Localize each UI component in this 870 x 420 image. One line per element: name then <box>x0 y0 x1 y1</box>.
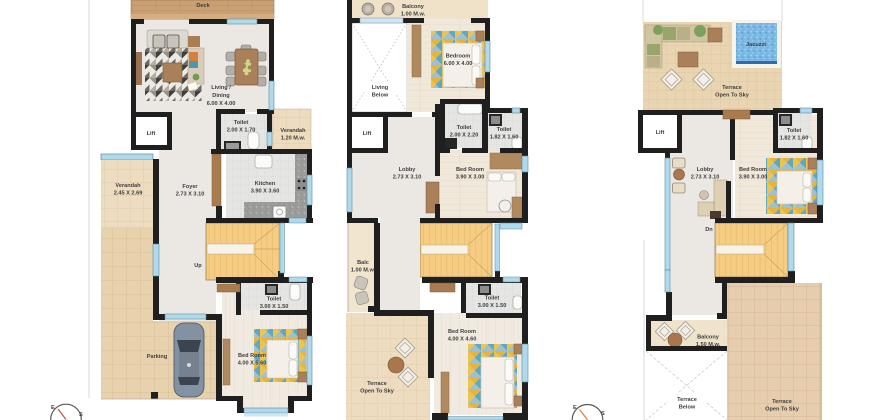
svg-text:3.90 X 3.60: 3.90 X 3.60 <box>251 189 280 195</box>
svg-text:3.00 X 1.50: 3.00 X 1.50 <box>260 304 289 310</box>
svg-text:Lobby: Lobby <box>399 167 417 173</box>
svg-text:1.82 X 1.60: 1.82 X 1.60 <box>490 135 519 141</box>
svg-text:1.20 M.w.: 1.20 M.w. <box>281 136 306 142</box>
svg-text:3.00 X 1.50: 3.00 X 1.50 <box>478 303 507 309</box>
svg-text:Open To Sky: Open To Sky <box>715 93 750 99</box>
svg-text:Deck: Deck <box>196 3 210 9</box>
svg-text:Terrace: Terrace <box>677 397 697 403</box>
svg-text:1.00 M.w.: 1.00 M.w. <box>351 268 376 274</box>
svg-text:2.73 X 3.10: 2.73 X 3.10 <box>393 175 422 181</box>
svg-text:Lift: Lift <box>363 131 372 137</box>
svg-text:Verandah: Verandah <box>115 183 141 189</box>
svg-text:Bed Room: Bed Room <box>448 329 476 335</box>
svg-text:Up: Up <box>194 263 202 269</box>
svg-text:Jacuzzi: Jacuzzi <box>746 42 766 48</box>
svg-text:E: E <box>51 405 55 411</box>
svg-text:3.90 X 3.00: 3.90 X 3.00 <box>739 175 768 181</box>
svg-text:Open To Sky: Open To Sky <box>360 389 395 395</box>
svg-text:Below: Below <box>372 93 389 99</box>
svg-text:3.90 X 3.00: 3.90 X 3.00 <box>456 175 485 181</box>
svg-text:Bed Room: Bed Room <box>238 353 266 359</box>
svg-text:Bed Room: Bed Room <box>456 167 484 173</box>
svg-text:Bedroom: Bedroom <box>446 54 471 60</box>
svg-text:Bed Room: Bed Room <box>739 167 767 173</box>
svg-text:4.00 X 4.60: 4.00 X 4.60 <box>448 337 477 343</box>
svg-text:S: S <box>601 411 605 417</box>
svg-text:Lift: Lift <box>147 131 156 137</box>
svg-text:Kitchen: Kitchen <box>255 181 276 187</box>
svg-text:Toilet: Toilet <box>267 297 282 303</box>
svg-text:Lift: Lift <box>656 130 665 136</box>
svg-text:Living: Living <box>372 85 389 91</box>
svg-text:Toilet: Toilet <box>787 128 802 134</box>
svg-text:Living /: Living / <box>211 85 231 91</box>
svg-text:2.73 X 3.10: 2.73 X 3.10 <box>691 175 720 181</box>
svg-text:Dn: Dn <box>705 227 713 233</box>
svg-text:Below: Below <box>679 405 696 411</box>
svg-text:S: S <box>79 412 83 418</box>
svg-text:4.00 X 5.60: 4.00 X 5.60 <box>238 361 267 367</box>
svg-text:Dining: Dining <box>212 93 230 99</box>
svg-text:2.73 X 3.10: 2.73 X 3.10 <box>176 192 205 198</box>
svg-text:2.00 X 2.20: 2.00 X 2.20 <box>450 133 479 139</box>
svg-text:Open To Sky: Open To Sky <box>765 407 800 413</box>
svg-text:Foyer: Foyer <box>182 184 198 190</box>
svg-text:Terrace: Terrace <box>772 399 792 405</box>
svg-text:1.00 M.w.: 1.00 M.w. <box>401 12 426 18</box>
svg-text:E: E <box>573 405 577 411</box>
svg-text:Lobby: Lobby <box>697 167 715 173</box>
svg-text:6.00 X 4.00: 6.00 X 4.00 <box>207 101 236 107</box>
svg-text:Terrace: Terrace <box>722 85 742 91</box>
svg-text:Toilet: Toilet <box>485 296 500 302</box>
svg-text:6.00 X 4.00: 6.00 X 4.00 <box>444 61 473 67</box>
svg-text:Verandah: Verandah <box>280 128 306 134</box>
svg-text:Toilet: Toilet <box>234 120 249 126</box>
svg-text:Balcony: Balcony <box>402 4 425 10</box>
svg-text:1.82 X 1.60: 1.82 X 1.60 <box>780 136 809 142</box>
svg-text:Toilet: Toilet <box>457 125 472 131</box>
svg-text:Parking: Parking <box>147 354 168 360</box>
svg-text:Balc: Balc <box>357 260 369 266</box>
svg-text:Terrace: Terrace <box>367 381 387 387</box>
svg-text:Toilet: Toilet <box>497 127 512 133</box>
svg-text:2.45 X 2.69: 2.45 X 2.69 <box>114 191 143 197</box>
svg-text:Balcony: Balcony <box>697 335 720 341</box>
